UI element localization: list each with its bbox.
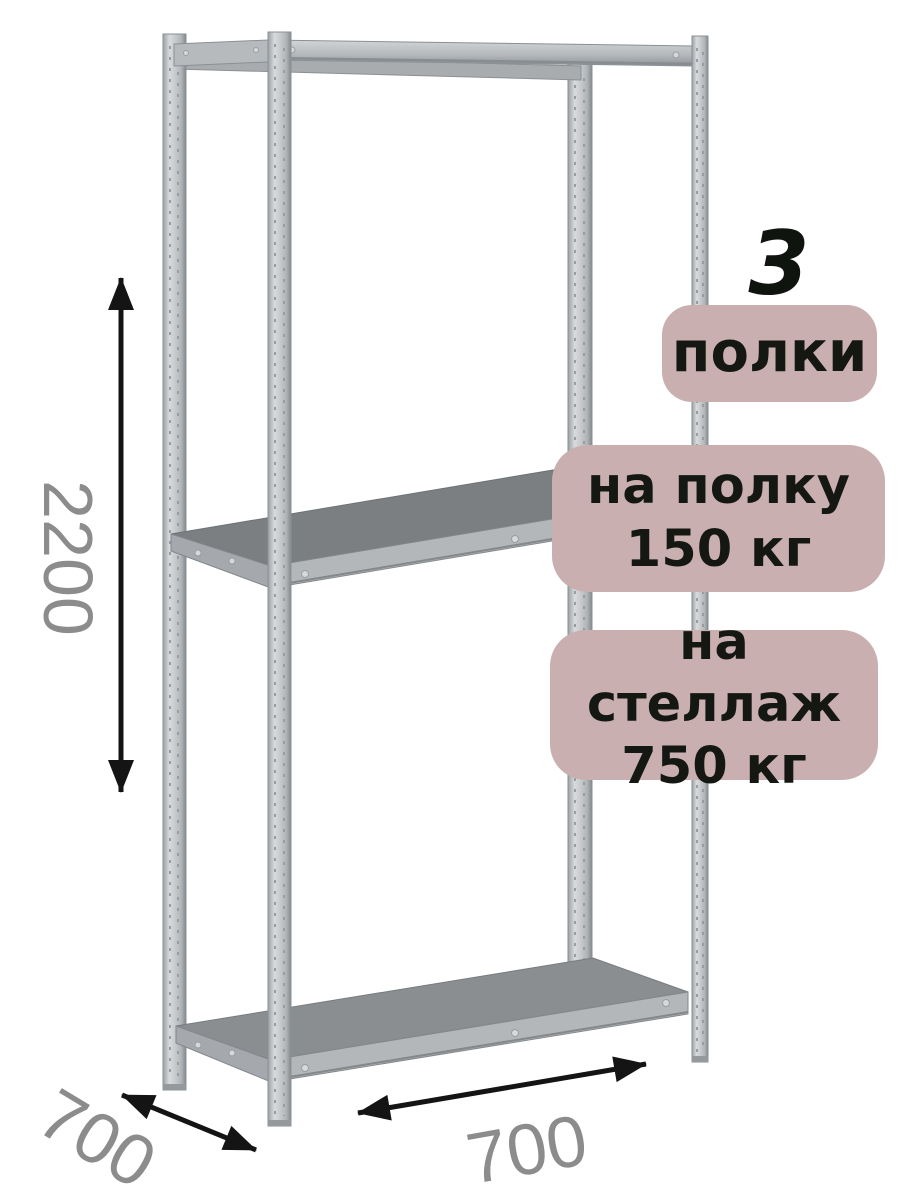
rack-load-line2: 750 кг: [621, 736, 806, 798]
width-arrow: [358, 1064, 646, 1113]
shelf-load-badge: на полку 150 кг: [552, 445, 885, 592]
shelf-count-number: 3: [748, 220, 809, 308]
shelf-load-line2: 150 кг: [626, 519, 811, 581]
height-dimension-label: 2200: [28, 480, 108, 636]
rack-load-line1: на стеллаж: [550, 612, 878, 736]
rack-post-front-left: [268, 32, 291, 1126]
shelf-count-badge: полки: [662, 305, 877, 402]
rack-post-back-left: [163, 34, 186, 1090]
shelf-count-label: полки: [672, 319, 867, 387]
rack-illustration: [0, 0, 900, 1200]
product-image: 2200 700 700 3 полки на полку 150 кг на …: [0, 0, 900, 1200]
rack-beam-top-left: [174, 40, 268, 66]
shelf-load-line1: на полку: [587, 456, 850, 518]
rack-load-badge: на стеллаж 750 кг: [550, 630, 878, 780]
rack-shelf-bottom: [176, 958, 688, 1082]
